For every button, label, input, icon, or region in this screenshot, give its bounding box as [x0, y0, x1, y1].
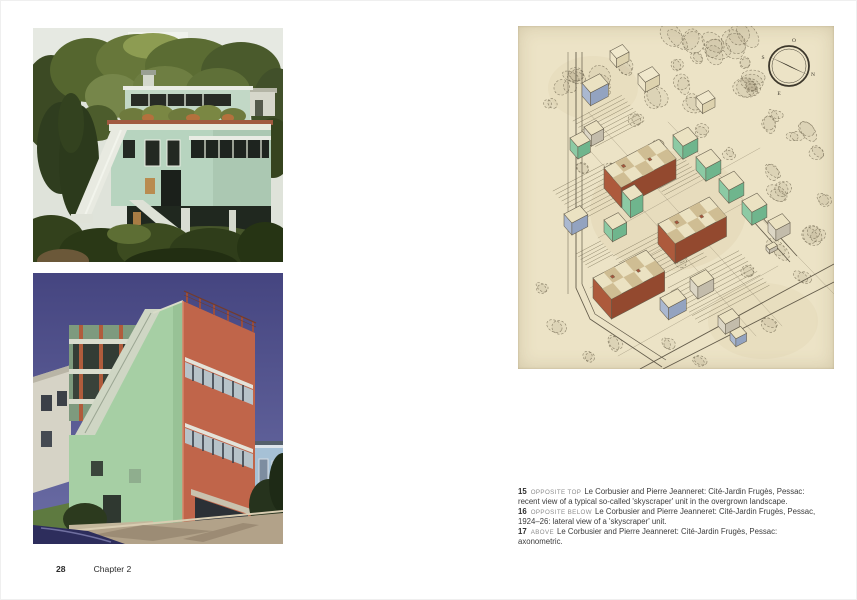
caption-number: 17: [518, 527, 527, 536]
book-spread: OSNE 15OPPOSITE TOPLe Corbusier and Pier…: [0, 0, 857, 600]
house: [107, 70, 273, 206]
orange-facade: [183, 291, 256, 544]
caption-15: 15OPPOSITE TOPLe Corbusier and Pierre Je…: [518, 487, 818, 507]
photo-bottom-art: [33, 273, 283, 544]
captions-block: 15OPPOSITE TOPLe Corbusier and Pierre Je…: [518, 487, 818, 546]
svg-text:N: N: [811, 72, 815, 78]
photo-skyscraper-lateral: [33, 273, 283, 544]
chapter-label: Chapter 2: [94, 564, 132, 574]
page-number: 28: [56, 564, 66, 574]
svg-text:O: O: [792, 38, 796, 44]
photo-skyscraper-overgrown: [33, 28, 283, 262]
caption-17: 17ABOVELe Corbusier and Pierre Jeanneret…: [518, 527, 818, 547]
caption-position: ABOVE: [531, 529, 554, 536]
white-building-left: [33, 365, 71, 493]
svg-text:S: S: [761, 55, 764, 61]
caption-position: OPPOSITE TOP: [531, 489, 582, 496]
caption-number: 16: [518, 507, 527, 516]
caption-16: 16OPPOSITE BELOWLe Corbusier and Pierre …: [518, 507, 818, 527]
axonometric-plate: OSNE: [518, 26, 834, 369]
axonometric-drawing: OSNE: [518, 26, 834, 369]
photo-top-art: [33, 28, 283, 262]
caption-number: 15: [518, 487, 527, 496]
page-footer: 28Chapter 2: [56, 564, 131, 574]
svg-text:E: E: [777, 91, 781, 97]
caption-position: OPPOSITE BELOW: [531, 509, 592, 516]
caption-text: Le Corbusier and Pierre Jeanneret: Cité-…: [518, 527, 777, 546]
